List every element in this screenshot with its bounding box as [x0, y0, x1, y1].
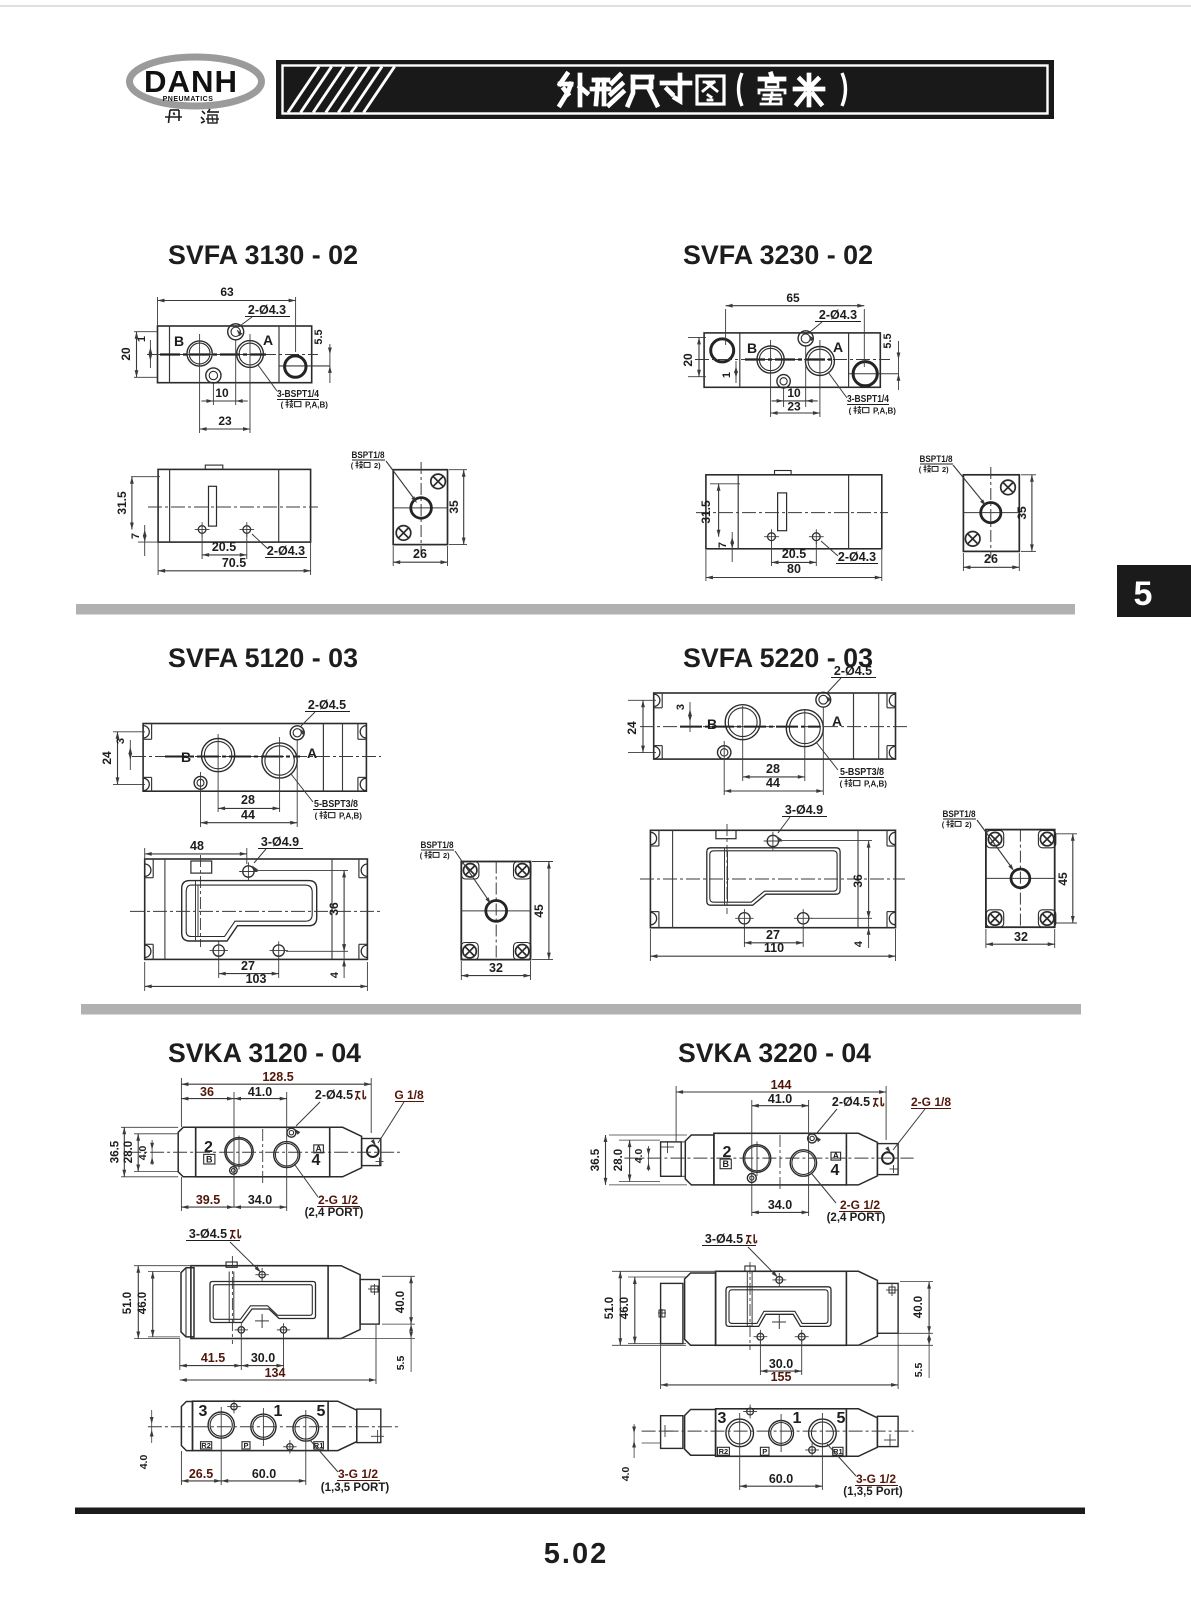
svg-text:20.5: 20.5 [212, 540, 236, 554]
svg-text:3-Ø4.9: 3-Ø4.9 [261, 835, 299, 849]
svg-text:2-Ø4.5: 2-Ø4.5 [308, 698, 346, 712]
svg-text:2): 2) [443, 851, 450, 860]
svg-text:3-G 1/2: 3-G 1/2 [856, 1472, 896, 1486]
svg-text:5.5: 5.5 [313, 329, 325, 344]
svg-text:36: 36 [851, 874, 865, 888]
svg-text:32: 32 [489, 961, 503, 975]
svg-text:2-Ø4.3: 2-Ø4.3 [248, 303, 286, 317]
svg-text:60.0: 60.0 [252, 1467, 276, 1481]
svg-text:10: 10 [787, 386, 801, 400]
svg-text:R2: R2 [201, 1441, 211, 1450]
svg-text:10: 10 [215, 386, 229, 400]
svg-text:5: 5 [837, 1410, 846, 1427]
svg-text:P,A,B): P,A,B) [305, 401, 328, 410]
svg-text:31.5: 31.5 [699, 500, 713, 524]
svg-text:BSPT1/8: BSPT1/8 [352, 450, 385, 461]
svg-text:26: 26 [984, 552, 998, 566]
svg-text:3-BSPT1/4: 3-BSPT1/4 [847, 393, 889, 405]
svg-text:30.0: 30.0 [769, 1357, 793, 1371]
svg-text:40.0: 40.0 [913, 1296, 925, 1318]
svg-text:40.0: 40.0 [395, 1291, 407, 1313]
svg-text:51.0: 51.0 [122, 1292, 134, 1314]
svg-text:65: 65 [786, 291, 800, 305]
svg-text:B: B [174, 333, 184, 349]
svg-text:1: 1 [793, 1410, 802, 1427]
svg-text:32: 32 [1014, 930, 1028, 944]
svg-text:110: 110 [764, 941, 784, 955]
svg-text:(2,4 PORT): (2,4 PORT) [305, 1207, 364, 1219]
svg-text:3: 3 [718, 1410, 727, 1427]
svg-text:23: 23 [787, 400, 801, 414]
svg-text:2-Ø4.3: 2-Ø4.3 [267, 544, 305, 558]
svg-text:36: 36 [327, 902, 341, 916]
svg-text:34.0: 34.0 [768, 1198, 792, 1212]
svg-text:20.5: 20.5 [782, 547, 806, 561]
svg-text:5: 5 [1134, 575, 1153, 613]
svg-text:B: B [181, 749, 191, 765]
svg-text:128.5: 128.5 [262, 1070, 293, 1084]
svg-text:5-BSPT3/8: 5-BSPT3/8 [840, 766, 884, 778]
svg-text:4: 4 [831, 1162, 840, 1179]
svg-text:46.0: 46.0 [137, 1292, 149, 1314]
svg-text:4.0: 4.0 [138, 1455, 150, 1470]
svg-text:36: 36 [200, 1085, 214, 1099]
svg-text:35: 35 [447, 500, 461, 514]
svg-text:5.02: 5.02 [544, 1538, 608, 1570]
svg-text:SVFA 5120 - 03: SVFA 5120 - 03 [168, 643, 358, 673]
svg-text:51.0: 51.0 [604, 1297, 616, 1319]
svg-text:5.5: 5.5 [913, 1363, 925, 1378]
svg-text:2-G 1/2: 2-G 1/2 [840, 1198, 880, 1212]
svg-text:134: 134 [265, 1366, 286, 1380]
svg-text:(1,3,5 Port): (1,3,5 Port) [843, 1486, 903, 1498]
svg-text:P,A,B): P,A,B) [864, 780, 887, 789]
svg-text:BSPT1/8: BSPT1/8 [421, 840, 454, 851]
svg-text:44: 44 [241, 808, 255, 822]
svg-text:45: 45 [532, 904, 546, 918]
svg-text:28: 28 [766, 762, 780, 776]
svg-text:BSPT1/8: BSPT1/8 [943, 809, 976, 820]
svg-text:A: A [307, 745, 317, 761]
svg-text:48: 48 [190, 839, 204, 853]
svg-text:20: 20 [681, 353, 695, 367]
svg-text:B: B [707, 716, 717, 732]
svg-text:31.5: 31.5 [115, 491, 129, 515]
svg-text:103: 103 [246, 972, 267, 986]
svg-text:45: 45 [1056, 872, 1070, 886]
svg-text:(: ( [281, 401, 284, 410]
svg-text:3-BSPT1/4: 3-BSPT1/4 [277, 388, 319, 400]
svg-text:27: 27 [241, 959, 255, 973]
svg-text:80: 80 [787, 562, 801, 576]
svg-text:DANH: DANH [144, 64, 238, 99]
svg-text:P,A,B): P,A,B) [873, 407, 896, 416]
svg-text:26: 26 [413, 547, 427, 561]
svg-text:P: P [243, 1441, 248, 1450]
svg-text:7: 7 [130, 533, 142, 539]
svg-text:2-Ø4.3: 2-Ø4.3 [838, 550, 876, 564]
svg-text:30.0: 30.0 [251, 1351, 275, 1365]
svg-text:23: 23 [218, 414, 232, 428]
svg-text:4.0: 4.0 [137, 1146, 149, 1161]
svg-text:3: 3 [199, 1403, 208, 1420]
svg-text:SVKA 3220 - 04: SVKA 3220 - 04 [678, 1038, 871, 1068]
svg-text:(: ( [849, 407, 852, 416]
svg-text:P,A,B): P,A,B) [339, 812, 362, 821]
svg-text:7: 7 [717, 542, 729, 548]
svg-text:155: 155 [771, 1370, 792, 1384]
svg-text:35: 35 [1015, 506, 1029, 520]
svg-text:2-Ø4.3: 2-Ø4.3 [819, 308, 857, 322]
svg-text:P: P [762, 1447, 767, 1456]
svg-text:1: 1 [721, 372, 733, 378]
svg-text:2-G 1/2: 2-G 1/2 [318, 1193, 358, 1207]
svg-text:3: 3 [675, 704, 687, 710]
svg-text:144: 144 [771, 1078, 792, 1092]
svg-text:41.5: 41.5 [201, 1351, 225, 1365]
svg-text:SVFA 3230 - 02: SVFA 3230 - 02 [683, 240, 873, 270]
svg-text:2-Ø4.5: 2-Ø4.5 [315, 1088, 353, 1102]
svg-text:G 1/8: G 1/8 [394, 1088, 424, 1102]
svg-text:5.5: 5.5 [882, 333, 894, 348]
svg-text:34.0: 34.0 [248, 1193, 272, 1207]
svg-text:A: A [263, 332, 273, 348]
svg-text:5.5: 5.5 [395, 1356, 407, 1371]
svg-text:4.0: 4.0 [620, 1467, 632, 1482]
svg-text:R2: R2 [719, 1447, 729, 1456]
svg-text:41.0: 41.0 [248, 1085, 272, 1099]
svg-text:70.5: 70.5 [222, 556, 246, 570]
svg-text:60.0: 60.0 [769, 1472, 793, 1486]
svg-text:3-G 1/2: 3-G 1/2 [338, 1467, 378, 1481]
svg-text:44: 44 [766, 776, 780, 790]
svg-text:R1: R1 [833, 1447, 843, 1456]
svg-text:27: 27 [766, 928, 780, 942]
svg-text:1: 1 [136, 336, 148, 342]
svg-text:5-BSPT3/8: 5-BSPT3/8 [314, 798, 358, 810]
svg-text:3-Ø4.9: 3-Ø4.9 [785, 803, 823, 817]
svg-text:A: A [833, 1151, 839, 1161]
svg-text:28.0: 28.0 [613, 1149, 625, 1171]
svg-text:SVKA 3120 - 04: SVKA 3120 - 04 [168, 1038, 361, 1068]
svg-text:B: B [747, 340, 757, 356]
svg-text:A: A [832, 713, 842, 729]
svg-text:24: 24 [625, 721, 639, 735]
svg-text:3-Ø4.5: 3-Ø4.5 [189, 1227, 227, 1241]
svg-text:24: 24 [100, 751, 114, 765]
svg-text:BSPT1/8: BSPT1/8 [920, 454, 953, 465]
svg-text:2): 2) [965, 820, 972, 829]
svg-text:41.0: 41.0 [768, 1092, 792, 1106]
svg-text:2): 2) [942, 465, 949, 474]
svg-text:4: 4 [312, 1152, 321, 1169]
svg-text:B: B [206, 1154, 213, 1164]
svg-text:39.5: 39.5 [196, 1193, 220, 1207]
svg-text:3: 3 [115, 738, 127, 744]
svg-text:2-G 1/8: 2-G 1/8 [911, 1095, 951, 1109]
svg-text:4: 4 [329, 971, 341, 978]
svg-text:46.0: 46.0 [619, 1297, 631, 1319]
svg-text:28.0: 28.0 [123, 1141, 135, 1163]
svg-text:20: 20 [119, 347, 133, 361]
svg-text:4: 4 [853, 940, 865, 947]
svg-text:(: ( [840, 780, 843, 789]
svg-text:3-Ø4.5: 3-Ø4.5 [705, 1232, 743, 1246]
svg-text:(2,4 PORT): (2,4 PORT) [827, 1212, 886, 1224]
svg-text:SVFA 3130 - 02: SVFA 3130 - 02 [168, 240, 358, 270]
svg-text:2-Ø4.5: 2-Ø4.5 [832, 1095, 870, 1109]
svg-text:36.5: 36.5 [110, 1140, 122, 1163]
svg-text:B: B [722, 1159, 729, 1169]
svg-text:2): 2) [374, 461, 381, 470]
svg-text:PNEUMATICS: PNEUMATICS [163, 96, 214, 103]
svg-text:(1,3,5 PORT): (1,3,5 PORT) [321, 1482, 390, 1494]
svg-text:63: 63 [220, 285, 234, 299]
svg-text:36.5: 36.5 [590, 1148, 602, 1171]
svg-text:28: 28 [241, 793, 255, 807]
svg-text:4.0: 4.0 [633, 1149, 645, 1164]
svg-text:(: ( [315, 812, 318, 821]
svg-text:2-Ø4.5: 2-Ø4.5 [834, 664, 872, 678]
svg-text:26.5: 26.5 [189, 1467, 213, 1481]
svg-text:1: 1 [274, 1403, 283, 1420]
svg-text:5: 5 [317, 1403, 326, 1420]
svg-text:A: A [833, 339, 843, 355]
